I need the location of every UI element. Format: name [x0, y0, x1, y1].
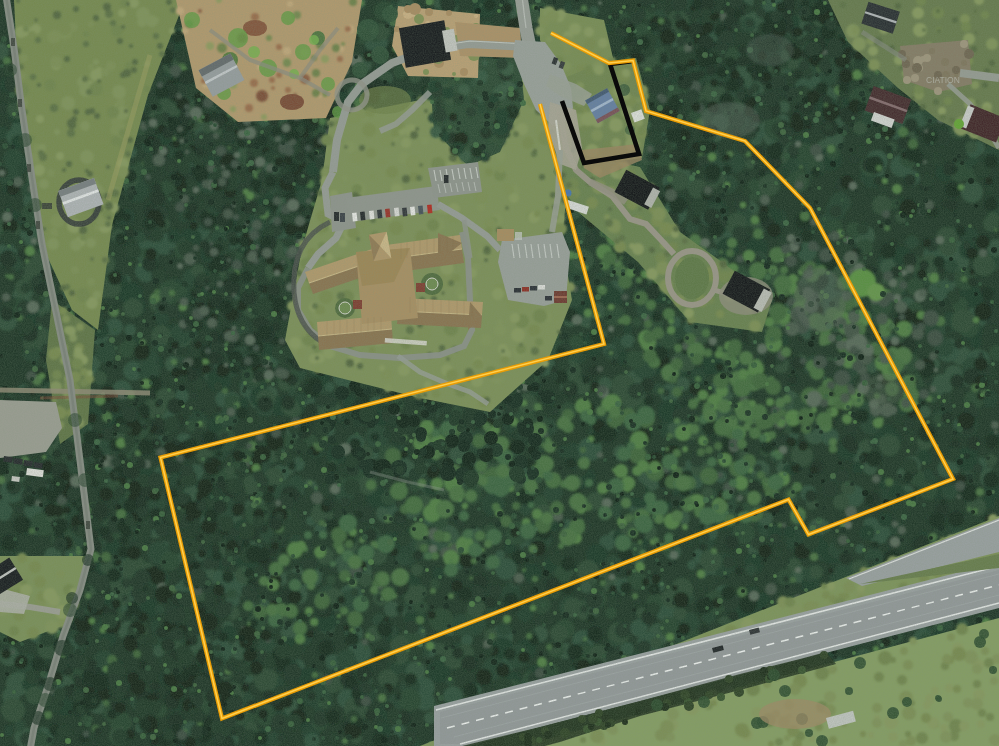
svg-text:CIATION: CIATION — [926, 75, 960, 85]
